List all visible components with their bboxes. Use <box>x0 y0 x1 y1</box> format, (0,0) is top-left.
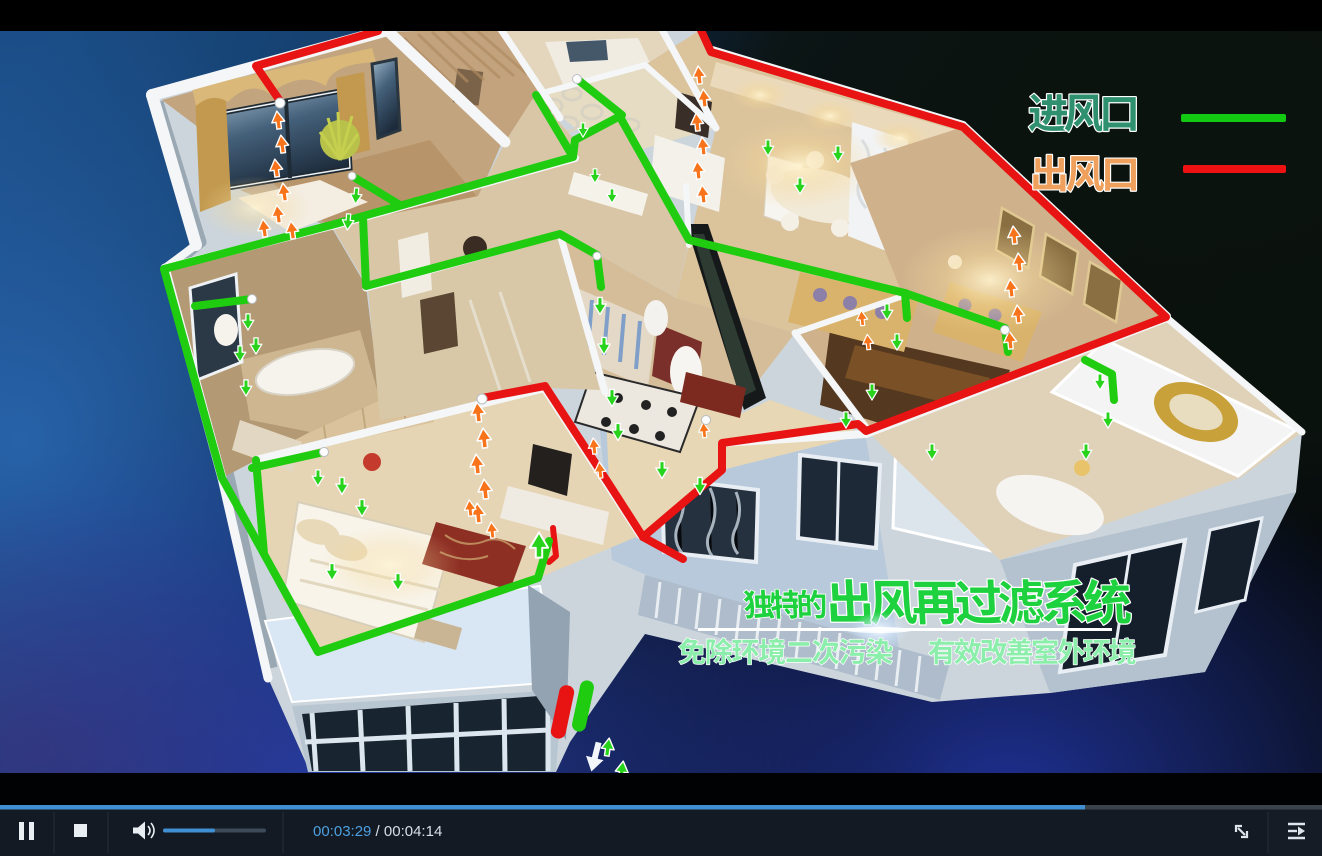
svg-text:00:03:29 / 00:04:14: 00:03:29 / 00:04:14 <box>313 823 442 840</box>
